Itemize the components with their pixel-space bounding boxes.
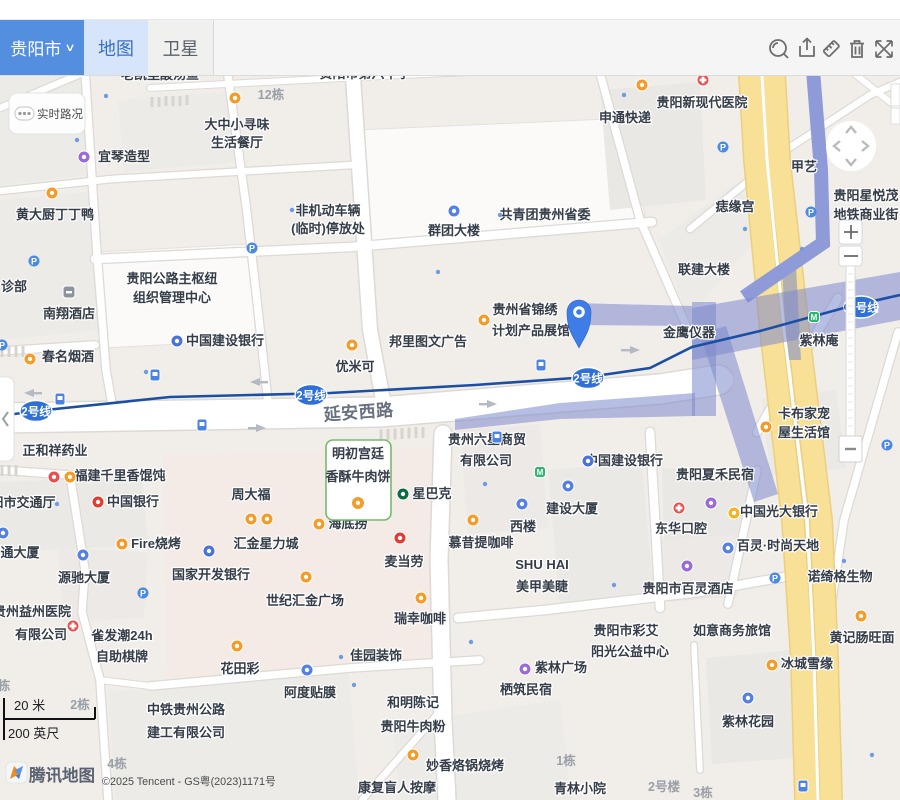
svg-text:贵阳星悦茂: 贵阳星悦茂 [833, 188, 898, 203]
svg-text:贵阳夏禾民宿: 贵阳夏禾民宿 [676, 467, 754, 482]
svg-text:大中小寻味: 大中小寻味 [204, 117, 269, 132]
svg-text:2号楼: 2号楼 [648, 779, 680, 794]
svg-text:栖筑民宿: 栖筑民宿 [500, 682, 552, 697]
svg-text:春名烟酒: 春名烟酒 [41, 349, 94, 364]
svg-text:P: P [31, 257, 37, 267]
svg-text:正和祥药业: 正和祥药业 [22, 443, 87, 458]
svg-text:建设大厦: 建设大厦 [546, 501, 599, 516]
svg-text:金鹰仪器: 金鹰仪器 [662, 325, 716, 340]
svg-text:有限公司: 有限公司 [15, 627, 67, 642]
svg-text:世纪汇金广场: 世纪汇金广场 [266, 593, 344, 608]
svg-text:贵阳公路主枢纽: 贵阳公路主枢纽 [126, 271, 217, 286]
svg-text:贵阳新现代医院: 贵阳新现代医院 [656, 95, 747, 110]
svg-text:康复盲人按摩: 康复盲人按摩 [358, 780, 437, 795]
svg-text:卡布家宠: 卡布家宠 [778, 406, 830, 421]
svg-text:P: P [884, 441, 890, 451]
svg-text:12栋: 12栋 [258, 87, 285, 102]
svg-text:诊部: 诊部 [1, 279, 27, 294]
svg-text:阿度贴膜: 阿度贴膜 [284, 685, 336, 700]
svg-text:中铁贵州公路: 中铁贵州公路 [147, 702, 226, 717]
svg-text:腾讯地图: 腾讯地图 [29, 765, 95, 785]
svg-text:P: P [0, 341, 5, 351]
svg-text:建工有限公司: 建工有限公司 [147, 725, 225, 740]
svg-text:黄大厨丁丁鸭: 黄大厨丁丁鸭 [16, 207, 94, 222]
svg-text:美甲美睫: 美甲美睫 [516, 579, 568, 594]
svg-text:汇金星力城: 汇金星力城 [233, 536, 298, 551]
svg-text:组织管理中心: 组织管理中心 [133, 290, 211, 305]
svg-text:P: P [772, 574, 778, 584]
svg-text:计划产品展馆: 计划产品展馆 [492, 323, 570, 338]
svg-text:麦当劳: 麦当劳 [384, 554, 423, 569]
svg-text:诺绮格生物: 诺绮格生物 [807, 569, 872, 584]
svg-text:痣缘宫: 痣缘宫 [715, 199, 754, 214]
svg-text:中国光大银行: 中国光大银行 [740, 504, 818, 519]
svg-text:屋生活馆: 屋生活馆 [778, 425, 830, 440]
svg-text:2号线: 2号线 [296, 389, 326, 403]
svg-text:通大厦: 通大厦 [0, 545, 40, 560]
svg-text:星巴克: 星巴克 [412, 486, 451, 501]
svg-text:生活餐厅: 生活餐厅 [211, 135, 263, 150]
svg-text:有限公司: 有限公司 [460, 453, 512, 468]
svg-text:中国银行: 中国银行 [107, 494, 159, 509]
svg-text:自助棋牌: 自助棋牌 [96, 649, 148, 664]
svg-text:SHU HAI: SHU HAI [515, 557, 568, 572]
svg-text:周大福: 周大福 [231, 487, 270, 502]
svg-text:贵阳市百灵酒店: 贵阳市百灵酒店 [642, 581, 733, 596]
svg-text:瑞幸咖啡: 瑞幸咖啡 [394, 611, 446, 626]
svg-text:紫林广场: 紫林广场 [535, 660, 587, 675]
svg-text:妙香烙锅烧烤: 妙香烙锅烧烤 [426, 758, 504, 773]
svg-text:明初宫廷: 明初宫廷 [332, 446, 385, 461]
svg-text:黄记肠旺面: 黄记肠旺面 [829, 630, 894, 645]
svg-text:M: M [811, 313, 818, 322]
svg-text:雀发潮24h: 雀发潮24h [90, 628, 152, 643]
svg-text:申通快递: 申通快递 [599, 110, 651, 125]
svg-text:东华口腔: 东华口腔 [655, 521, 707, 536]
svg-text:和明陈记: 和明陈记 [387, 695, 439, 710]
svg-text:宜琴造型: 宜琴造型 [98, 149, 150, 164]
svg-text:紫林花园: 紫林花园 [722, 714, 774, 729]
svg-text:甲艺: 甲艺 [791, 159, 817, 174]
svg-text:栋: 栋 [0, 678, 11, 693]
svg-text:2号线: 2号线 [573, 372, 603, 386]
svg-text:西楼: 西楼 [510, 519, 536, 534]
svg-text:紫林庵: 紫林庵 [799, 333, 839, 348]
svg-text:贵州六星商贸: 贵州六星商贸 [448, 432, 526, 447]
svg-text:中国建设银行: 中国建设银行 [585, 453, 663, 468]
svg-text:佳园装饰: 佳园装饰 [350, 648, 402, 663]
svg-text:慕昔提咖啡: 慕昔提咖啡 [447, 535, 513, 550]
svg-text:南翔酒店: 南翔酒店 [43, 306, 95, 321]
svg-text:实时路况: 实时路况 [37, 107, 83, 121]
svg-text:P: P [249, 244, 255, 254]
svg-text:贵州益州医院: 贵州益州医院 [0, 604, 71, 619]
svg-text:©2025 Tencent - GS粤(2023)1171号: ©2025 Tencent - GS粤(2023)1171号 [102, 774, 276, 788]
svg-text:3栋: 3栋 [693, 785, 713, 800]
svg-text:(临时)停放处: (临时)停放处 [291, 221, 366, 236]
svg-text:青林小院: 青林小院 [554, 781, 606, 796]
svg-text:1栋: 1栋 [556, 753, 576, 768]
svg-text:香酥牛肉饼: 香酥牛肉饼 [324, 469, 390, 484]
svg-text:优米可: 优米可 [335, 359, 374, 374]
svg-text:源驰大厦: 源驰大厦 [58, 570, 111, 585]
svg-text:阳市交通厅: 阳市交通厅 [0, 495, 56, 510]
svg-text:Fire烧烤: Fire烧烤 [131, 536, 181, 551]
svg-text:联建大楼: 联建大楼 [678, 262, 730, 277]
svg-text:贵阳市彩艾: 贵阳市彩艾 [593, 623, 658, 638]
svg-text:花田彩: 花田彩 [220, 661, 259, 676]
svg-text:P: P [140, 589, 146, 599]
svg-text:冰城雪缘: 冰城雪缘 [781, 656, 833, 671]
svg-text:百灵·时尚天地: 百灵·时尚天地 [737, 538, 819, 553]
svg-text:福建千里香馄饨: 福建千里香馄饨 [73, 468, 165, 483]
svg-text:阳光公益中心: 阳光公益中心 [591, 644, 669, 659]
svg-text:邦里图文广告: 邦里图文广告 [389, 334, 467, 349]
svg-text:非机动车辆: 非机动车辆 [295, 203, 360, 218]
svg-text:2栋: 2栋 [70, 697, 90, 712]
svg-text:P: P [720, 143, 726, 153]
svg-text:200 英尺: 200 英尺 [8, 726, 59, 741]
svg-text:国家开发银行: 国家开发银行 [172, 567, 250, 582]
svg-text:2号线: 2号线 [21, 405, 51, 419]
svg-text:贵州省锦绣: 贵州省锦绣 [492, 302, 558, 317]
svg-text:贵阳牛肉粉: 贵阳牛肉粉 [380, 719, 445, 734]
svg-text:中国建设银行: 中国建设银行 [186, 333, 264, 348]
svg-text:P: P [808, 208, 814, 218]
svg-text:如意商务旅馆: 如意商务旅馆 [693, 623, 771, 638]
svg-text:群团大楼: 群团大楼 [428, 223, 480, 238]
svg-text:4栋: 4栋 [107, 756, 127, 771]
svg-text:M: M [537, 468, 544, 477]
svg-text:共青团贵州省委: 共青团贵州省委 [499, 207, 590, 222]
svg-text:20 米: 20 米 [14, 698, 45, 713]
